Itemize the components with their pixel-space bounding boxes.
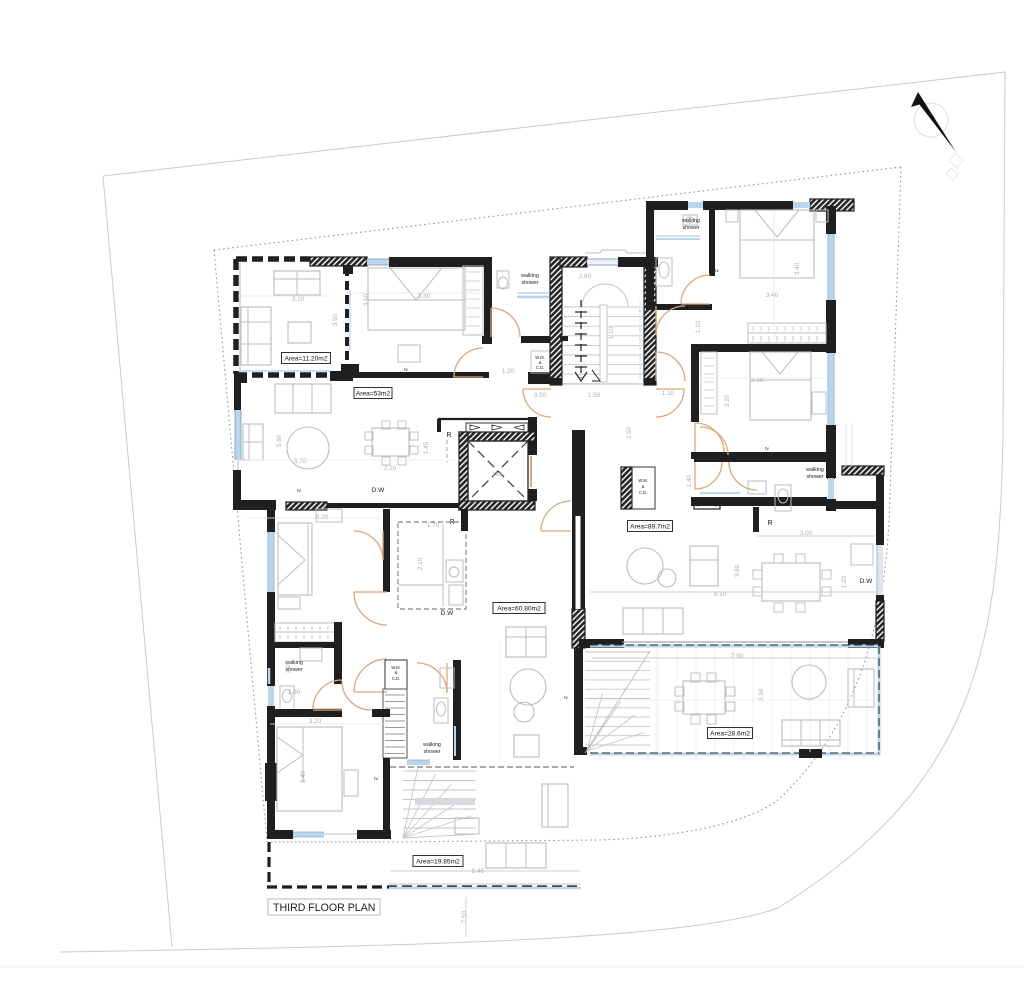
svg-text:3.50: 3.50 (363, 293, 370, 306)
svg-text:2.10: 2.10 (417, 557, 424, 570)
svg-text:2.00: 2.00 (285, 660, 292, 673)
svg-text:D.W: D.W (441, 610, 455, 617)
svg-text:shower: shower (682, 225, 699, 231)
svg-text:walking: walking (521, 273, 539, 279)
svg-text:2.60: 2.60 (579, 273, 592, 280)
svg-text:3.40: 3.40 (300, 770, 307, 783)
svg-text:1.10: 1.10 (695, 320, 702, 333)
svg-text:3.30: 3.30 (418, 293, 431, 300)
svg-text:&: & (395, 670, 398, 675)
svg-text:D.W: D.W (372, 487, 386, 494)
svg-text:R: R (767, 520, 772, 527)
svg-text:C.D.: C.D. (392, 676, 400, 681)
svg-text:3.40: 3.40 (766, 292, 779, 299)
svg-text:2.50: 2.50 (626, 426, 633, 439)
svg-text:Area=60.80m2: Area=60.80m2 (497, 605, 541, 612)
svg-text:shower: shower (423, 749, 440, 755)
svg-text:D.W: D.W (860, 578, 874, 585)
svg-text:C.D.: C.D. (639, 490, 647, 495)
svg-text:walking: walking (682, 218, 700, 224)
svg-text:3.10: 3.10 (292, 296, 305, 303)
svg-text:THIRD FLOOR PLAN: THIRD FLOOR PLAN (273, 902, 375, 914)
svg-text:7.90: 7.90 (731, 653, 744, 660)
svg-text:3.50: 3.50 (534, 392, 547, 399)
svg-text:walking: walking (806, 467, 824, 473)
svg-text:3.70: 3.70 (294, 458, 307, 465)
svg-text:R: R (446, 432, 451, 439)
svg-text:Area=11.20m2: Area=11.20m2 (285, 355, 328, 362)
svg-text:7.50: 7.50 (461, 910, 468, 923)
svg-text:1.40: 1.40 (686, 474, 693, 487)
svg-text:C.D.: C.D. (536, 365, 544, 370)
svg-text:shower: shower (806, 474, 823, 480)
svg-text:Area=53m2: Area=53m2 (356, 390, 391, 397)
svg-text:3.40: 3.40 (794, 262, 801, 275)
svg-text:R: R (449, 519, 454, 526)
svg-text:3.34: 3.34 (758, 688, 765, 701)
svg-text:1.85: 1.85 (492, 472, 502, 478)
svg-text:2.10: 2.10 (384, 465, 397, 472)
svg-text:3.20: 3.20 (316, 514, 329, 521)
svg-text:5.60: 5.60 (276, 434, 283, 447)
svg-text:1.20: 1.20 (502, 368, 515, 375)
svg-text:1.10: 1.10 (662, 390, 675, 397)
svg-text:walking: walking (423, 742, 441, 748)
svg-text:Area=89.7m2: Area=89.7m2 (630, 523, 670, 530)
svg-text:1.90: 1.90 (288, 689, 301, 696)
svg-text:1.20: 1.20 (841, 575, 848, 588)
svg-text:1.45: 1.45 (423, 441, 430, 454)
svg-text:shower: shower (521, 280, 538, 286)
svg-text:1.10: 1.10 (608, 326, 615, 339)
svg-text:1.70: 1.70 (427, 522, 440, 529)
svg-text:Area=28.6m2: Area=28.6m2 (710, 730, 750, 737)
svg-text:1.50: 1.50 (588, 392, 601, 399)
svg-text:3.80: 3.80 (734, 564, 741, 577)
svg-text:3.50: 3.50 (332, 313, 339, 326)
svg-text:&: & (642, 484, 645, 489)
svg-text:W.M.: W.M. (638, 478, 648, 483)
svg-text:Area=19.85m2: Area=19.85m2 (416, 858, 460, 865)
svg-text:5.45: 5.45 (472, 868, 485, 875)
svg-text:3.20: 3.20 (724, 394, 731, 407)
